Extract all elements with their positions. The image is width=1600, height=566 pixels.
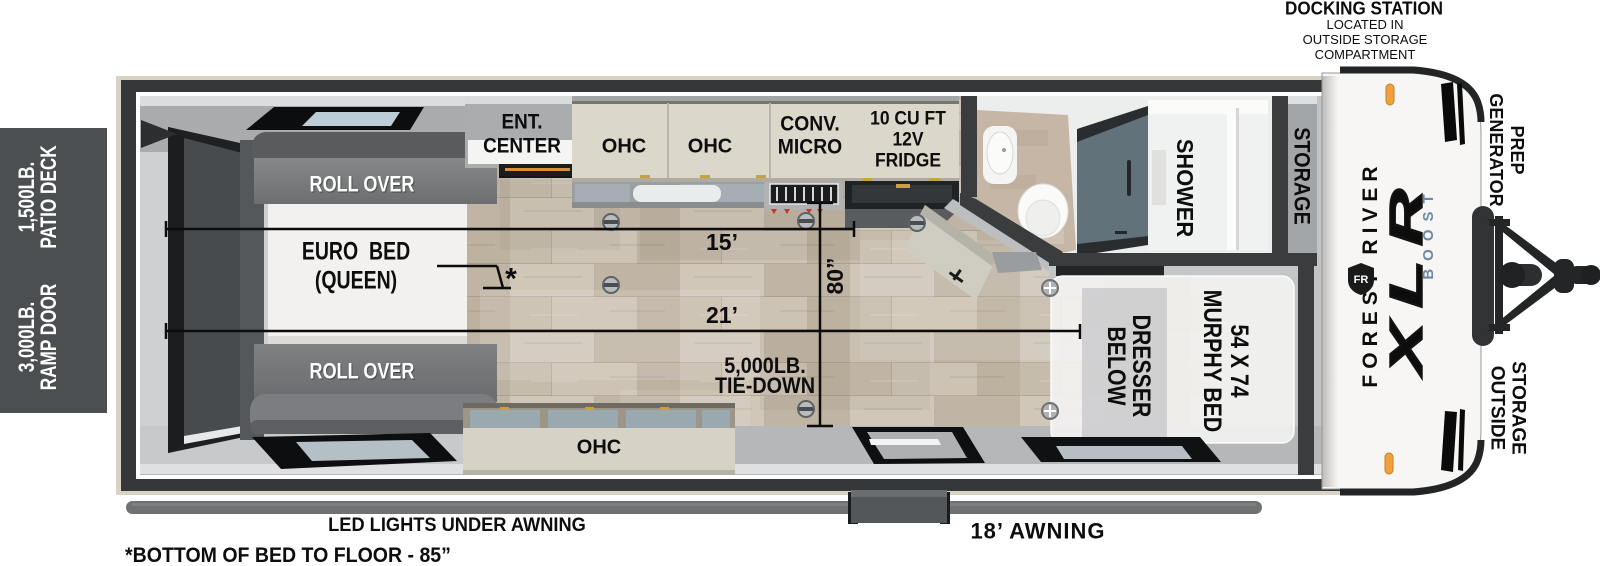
svg-text:FR: FR — [1354, 274, 1369, 286]
